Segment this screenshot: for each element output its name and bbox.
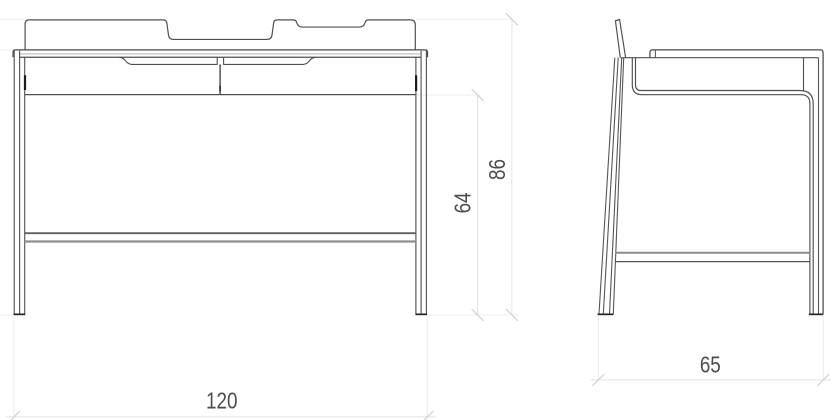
svg-text:65: 65 (700, 353, 721, 378)
svg-text:120: 120 (206, 389, 237, 414)
svg-text:86: 86 (485, 159, 510, 180)
svg-text:64: 64 (451, 192, 476, 213)
